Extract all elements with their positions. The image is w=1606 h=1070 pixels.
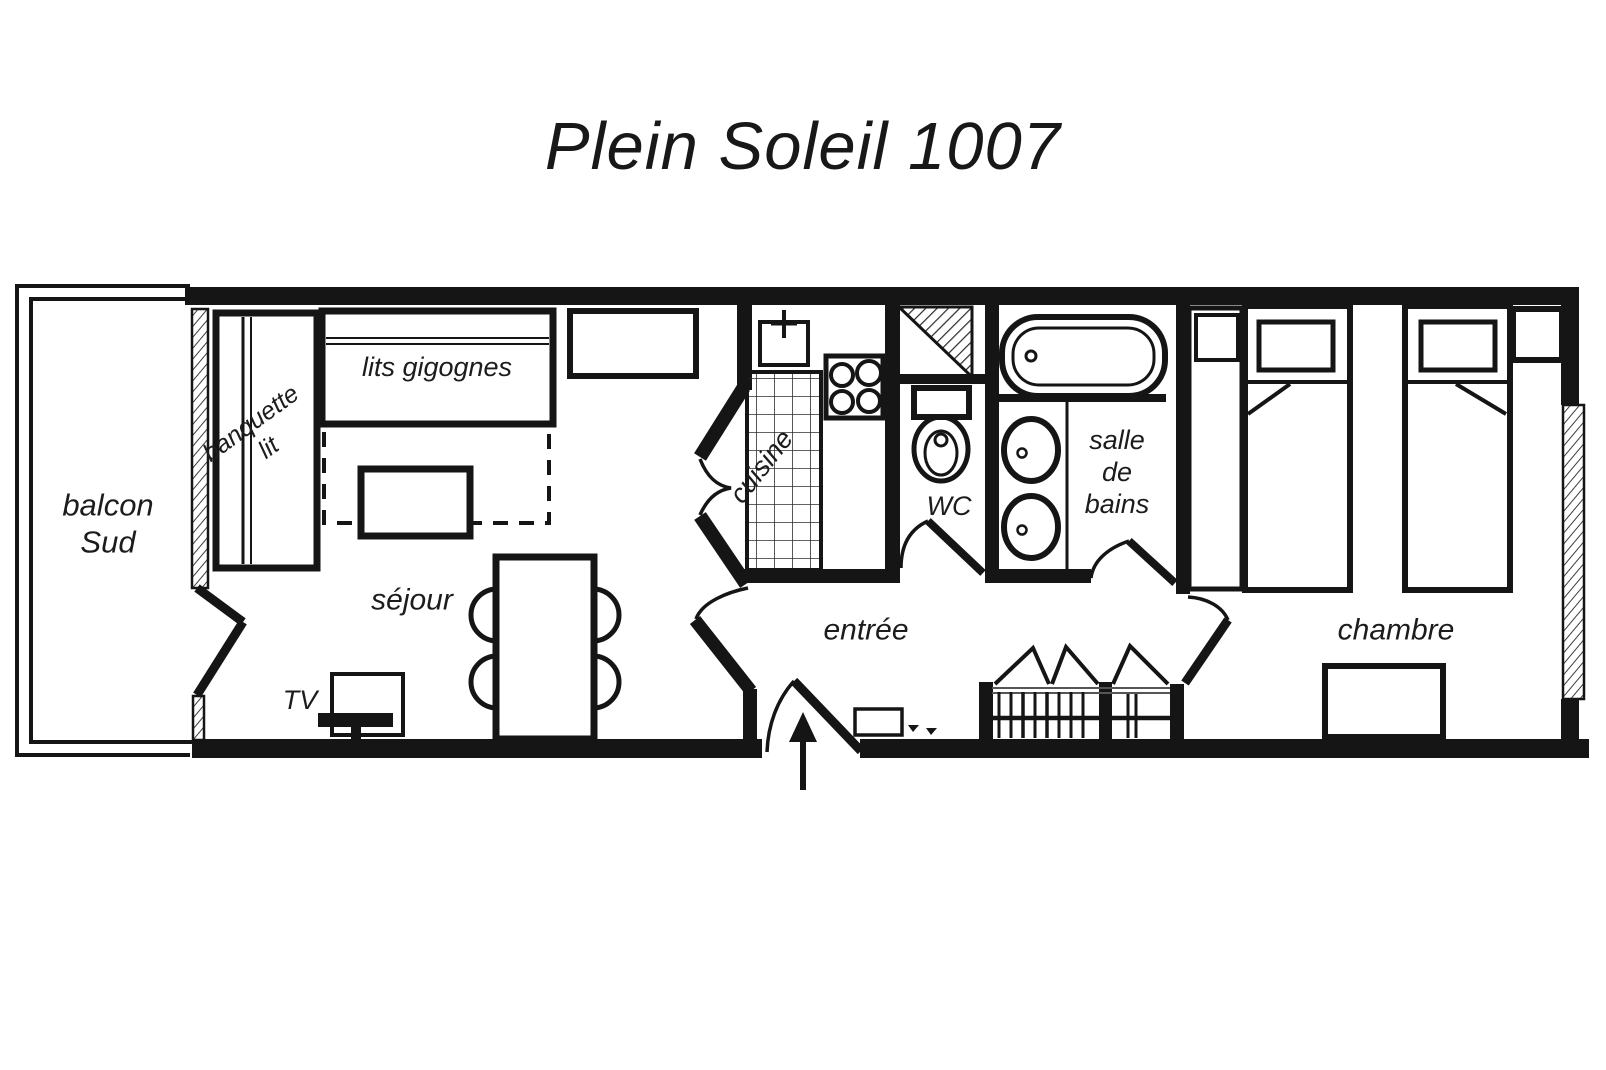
single-bed-1 (1245, 306, 1350, 590)
furniture-label-tv: TV (283, 685, 318, 717)
furniture-label-trundle-beds: lits gigognes (362, 352, 512, 384)
bathroom-door-leaf (1129, 541, 1175, 583)
room-label-balcony: balcon Sud (62, 487, 153, 560)
tv-set (318, 674, 403, 740)
bedroom-column (1189, 308, 1242, 589)
balcony-french-door-leaf (197, 622, 243, 695)
kitchen-sink (760, 310, 808, 365)
room-label-wc: WC (927, 491, 972, 523)
bathtub (1002, 317, 1165, 396)
bifold-doors (995, 646, 1168, 684)
single-bed-2 (1405, 306, 1510, 590)
stove (826, 356, 883, 418)
living-entry-arc (696, 588, 748, 619)
room-label-living: séjour (371, 582, 453, 617)
dresser (1325, 666, 1443, 737)
bedroom-door-arc (1188, 597, 1228, 620)
bedroom-door-leaf (1185, 620, 1228, 683)
closet-hangers (992, 688, 1170, 738)
bathroom-door-arc (1091, 541, 1129, 578)
floorplan-page: Plein Soleil 1007 (0, 0, 1606, 1070)
floorplan-drawing (0, 0, 1606, 1070)
wall-shelf (570, 311, 696, 376)
balcony-window-stub (193, 696, 204, 740)
doormat (855, 709, 937, 735)
toilet (914, 388, 969, 481)
entry-arrow (789, 712, 817, 790)
angled-walls (695, 387, 751, 691)
bedroom-window (1563, 405, 1584, 699)
pillow (1259, 322, 1333, 370)
double-basin (1004, 402, 1067, 580)
room-label-bathroom: salle de bains (1085, 425, 1150, 521)
dining-table-chairs (471, 557, 619, 739)
nightstand (1513, 309, 1562, 360)
coffee-table (361, 469, 470, 536)
dining-table (496, 557, 594, 739)
pillow (1421, 322, 1495, 370)
wc-door-arc (901, 521, 928, 568)
room-label-bedroom: chambre (1338, 612, 1455, 647)
balcony-french-door-leaf (197, 588, 243, 622)
room-label-entrance: entrée (823, 612, 908, 647)
wc-storage-triangle (899, 307, 972, 377)
wc-door-leaf (928, 521, 983, 573)
